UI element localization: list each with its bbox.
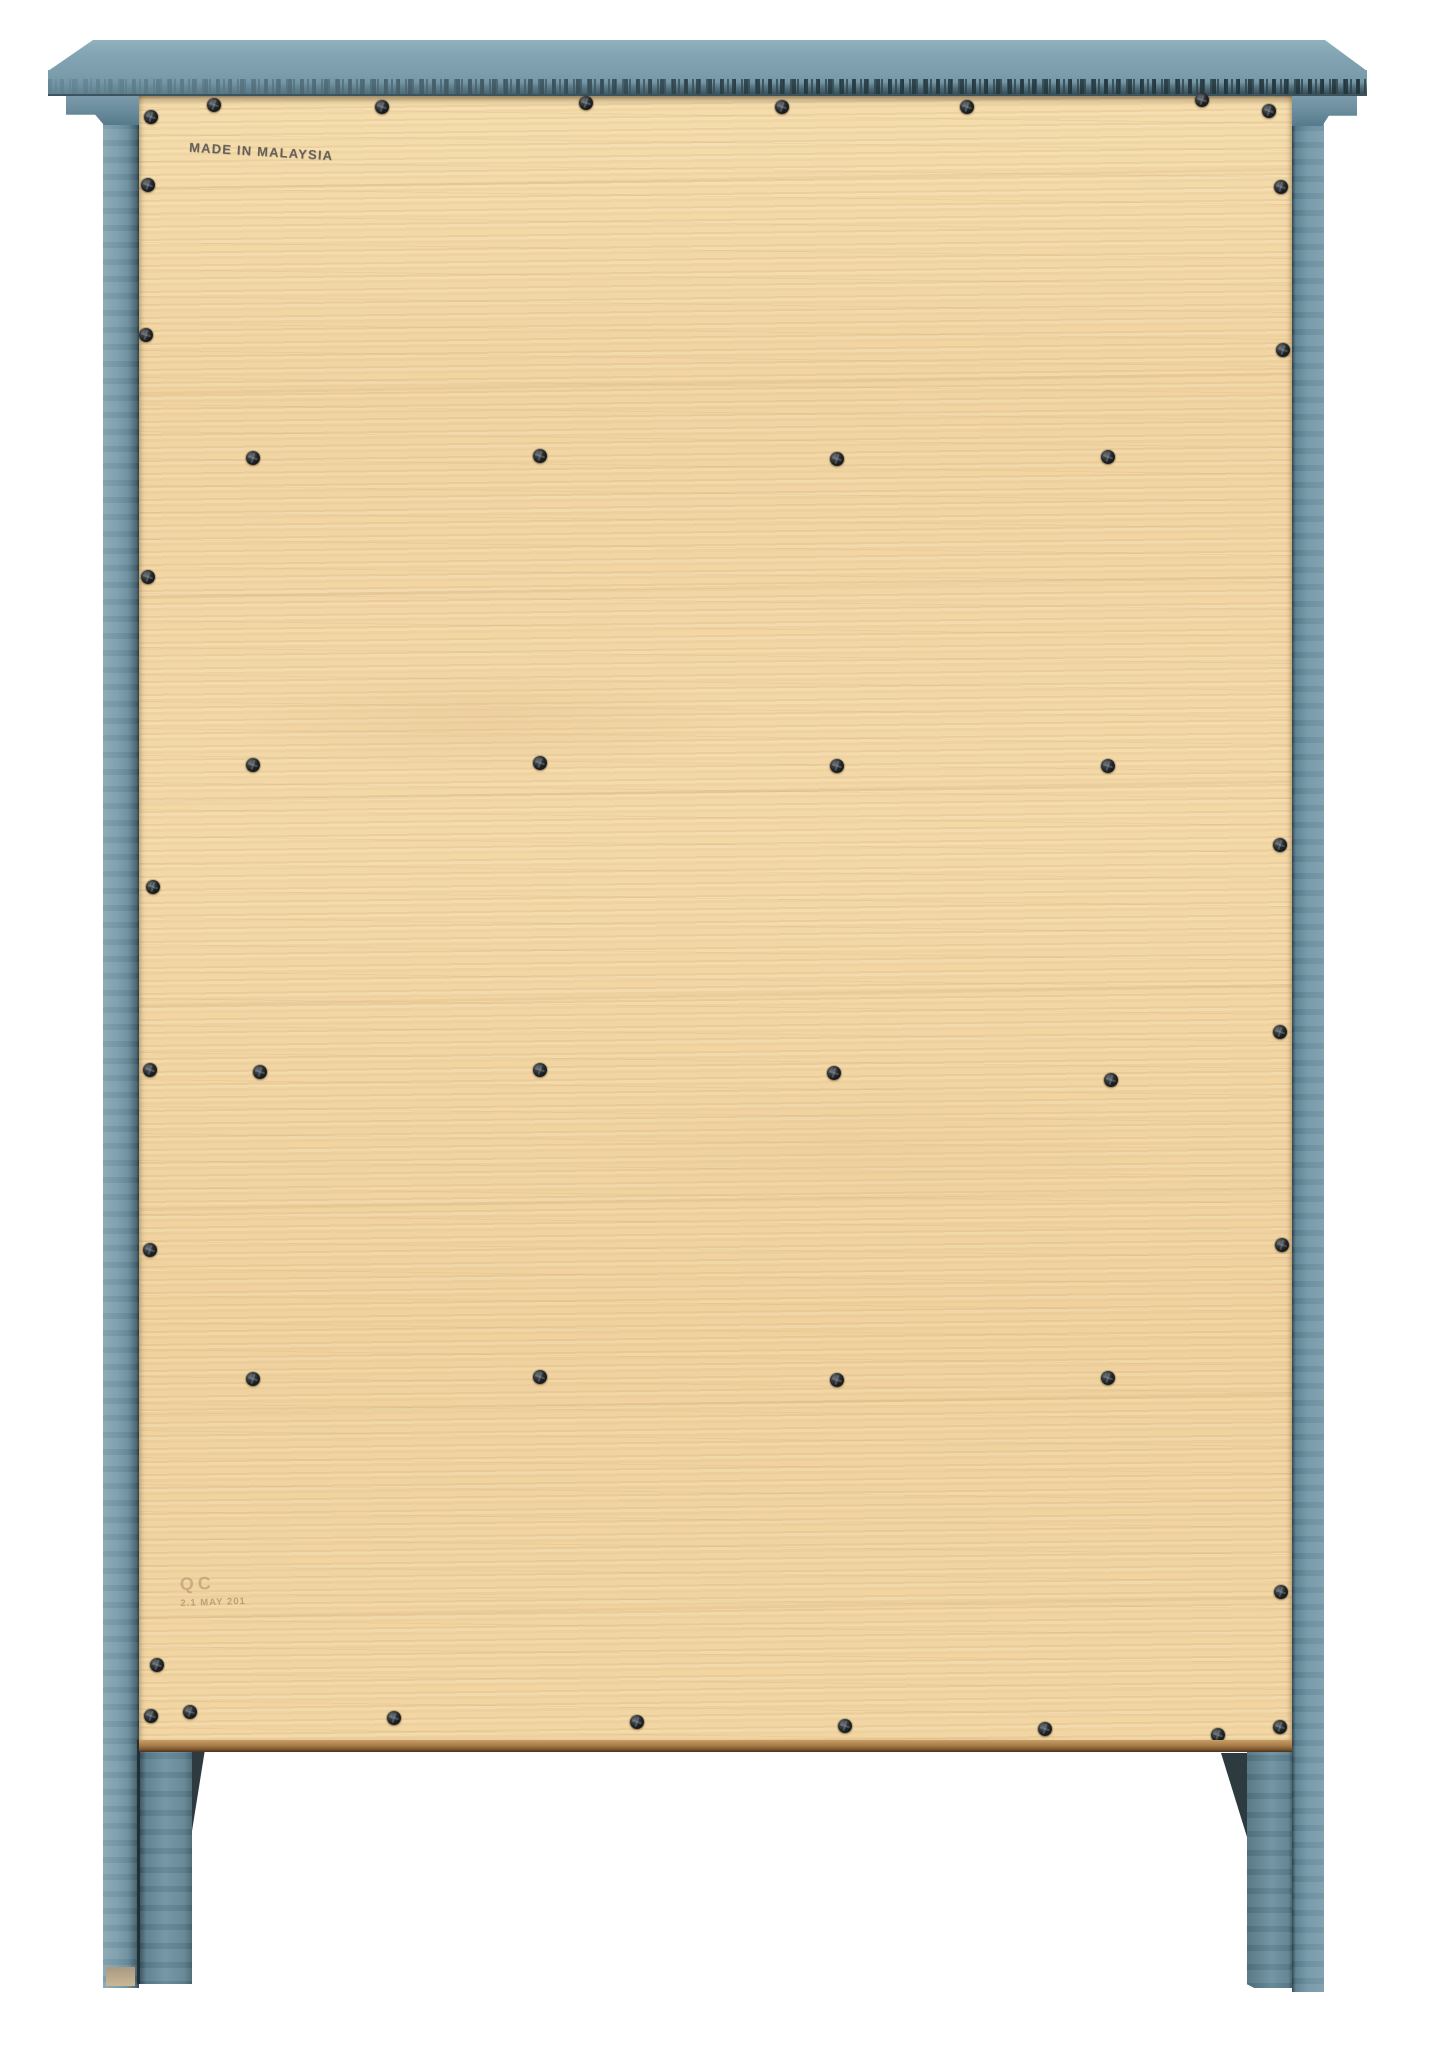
screw: [144, 1709, 158, 1723]
left-corner-bracket: [192, 1743, 206, 1831]
screw: [830, 759, 844, 773]
screw: [207, 98, 221, 112]
screw: [143, 1243, 157, 1257]
screw: [1262, 104, 1276, 118]
screw: [830, 1373, 844, 1387]
screw: [827, 1066, 841, 1080]
screw: [1274, 1585, 1288, 1599]
screw: [146, 880, 160, 894]
left-stile-foot: [106, 1967, 135, 1986]
top-panel-surface: [48, 40, 1367, 71]
screw: [960, 100, 974, 114]
right-corner-bracket: [1221, 1753, 1247, 1837]
right-top-molding: [1290, 96, 1357, 126]
screw-layer: [139, 96, 1292, 1740]
screw: [1101, 450, 1115, 464]
screw: [1104, 1073, 1118, 1087]
screw: [775, 100, 789, 114]
screw: [1276, 343, 1290, 357]
screw: [375, 100, 389, 114]
top-panel-edge: [48, 70, 1367, 96]
screw: [144, 110, 158, 124]
left-back-leg: [137, 1740, 192, 1984]
back-panel: MADE IN MALAYSIA QC 2.1 MAY 201: [139, 96, 1292, 1740]
panel-bottom-edge: [139, 1740, 1292, 1752]
screw: [246, 758, 260, 772]
left-top-molding: [66, 95, 139, 125]
screw: [1274, 180, 1288, 194]
screw: [533, 449, 547, 463]
screw: [150, 1658, 164, 1672]
screw: [246, 1372, 260, 1386]
screw: [183, 1705, 197, 1719]
screw: [533, 1370, 547, 1384]
right-back-leg: [1247, 1742, 1292, 1988]
screw: [143, 1063, 157, 1077]
screw: [1273, 1025, 1287, 1039]
screw: [630, 1715, 644, 1729]
screw: [1101, 759, 1115, 773]
screw: [1273, 1720, 1287, 1734]
screw: [1273, 838, 1287, 852]
screw: [533, 756, 547, 770]
screw: [533, 1063, 547, 1077]
screw: [1101, 1371, 1115, 1385]
right-rear-stile: [1292, 97, 1324, 1992]
screw: [253, 1065, 267, 1079]
screw: [139, 328, 153, 342]
screw: [141, 570, 155, 584]
screw: [1195, 93, 1209, 107]
screw: [579, 96, 593, 110]
screw: [838, 1719, 852, 1733]
screw: [141, 178, 155, 192]
screw: [246, 451, 260, 465]
screw: [387, 1711, 401, 1725]
distressed-paint-band: [48, 79, 1367, 94]
left-rear-stile: [103, 95, 139, 1988]
screw: [830, 452, 844, 466]
furniture-back-photo: MADE IN MALAYSIA QC 2.1 MAY 201: [0, 0, 1430, 2048]
screw: [1275, 1238, 1289, 1252]
screw: [1038, 1722, 1052, 1736]
